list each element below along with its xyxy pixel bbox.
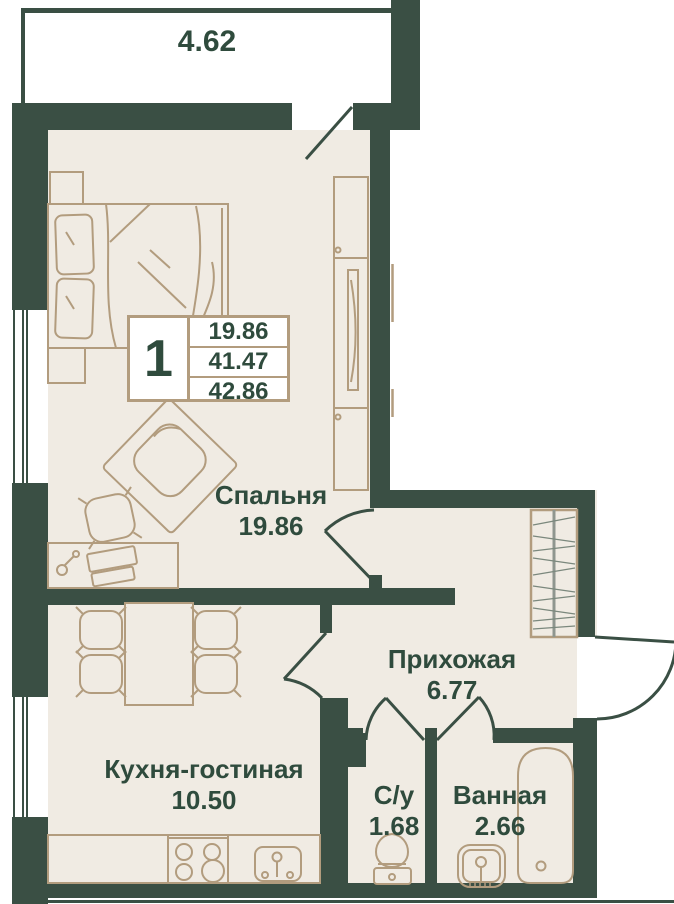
dining-chair [76,651,126,697]
living-area-value: 19.86 [190,318,287,348]
room-label-kitchen: Кухня-гостиная 10.50 [84,754,324,816]
dining-table [125,603,193,705]
room-area: 19.86 [171,511,371,542]
bottom-outline [12,900,674,903]
balcony-area-label: 4.62 [107,26,307,57]
kitchen-hall-stub [320,605,332,633]
room-name: С/у [374,780,414,810]
hallway-wardrobe [531,510,577,637]
room-label-bathroom: Ванная 2.66 [450,780,550,842]
floor-plan-page: 4.62 Спальня 19.86 Прихожая 6.77 Кухня-г… [0,0,674,904]
bedroom-right-wall [370,130,390,508]
balcony-area-value: 4.62 [178,25,236,58]
window-kitchen [12,697,48,817]
rooms-count: 1 [130,318,190,399]
room-name: Спальня [215,480,327,510]
top-wall-right [353,103,391,130]
dining-chair [191,607,241,653]
apartment-info-card: 1 19.86 41.47 42.86 [127,315,290,402]
room-area: 2.66 [450,811,550,842]
room-label-bedroom: Спальня 19.86 [171,480,371,542]
bedroom-kitchen-wall [48,588,455,605]
room-name: Прихожая [388,644,516,674]
area-values: 19.86 41.47 42.86 [190,318,287,399]
dining-chair [191,651,241,697]
bathroom-top-wall [493,728,597,743]
room-label-hallway: Прихожая 6.77 [352,644,552,706]
hallway-right-wall [577,508,595,637]
room-area: 1.68 [344,811,444,842]
left-wall-middle [12,483,48,697]
room-label-wc: С/у 1.68 [344,780,444,842]
entrance-door [595,637,674,719]
dining-chair [76,607,126,653]
top-wall-left [12,103,292,130]
room-area: 10.50 [84,785,324,816]
bottom-wall [12,883,597,898]
window-bedroom [12,310,48,483]
room-name: Ванная [453,780,547,810]
balcony-wall-top [21,8,392,13]
apartment-area-value: 41.47 [190,348,287,378]
balcony-wall-left [21,8,25,103]
hallway-top-wall [390,490,595,508]
total-area-value: 42.86 [190,378,287,406]
shaft-block [391,0,420,130]
bathroom-right-wall [573,718,597,898]
wc-corner-wall [348,733,366,767]
room-name: Кухня-гостиная [104,754,303,784]
left-wall-upper [12,130,48,310]
room-area: 6.77 [352,675,552,706]
